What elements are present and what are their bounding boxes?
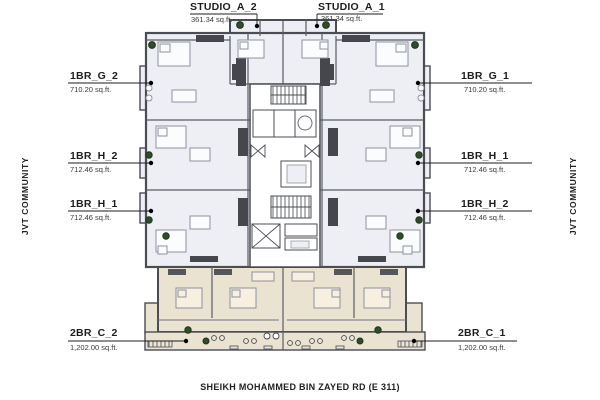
unit-area-1br-h-1-left: 712.46 sq.ft. bbox=[70, 213, 111, 222]
unit-area-studio-a-2: 361.34 sq.ft. bbox=[191, 15, 232, 24]
unit-area-1br-g-1: 710.20 sq.ft. bbox=[464, 85, 505, 94]
unit-area-1br-h-1-right: 712.46 sq.ft. bbox=[464, 165, 505, 174]
unit-label-2br-c-1: 2BR_C_1 bbox=[458, 327, 506, 339]
unit-area-1br-h-2-right: 712.46 sq.ft. bbox=[464, 213, 505, 222]
unit-label-2br-c-2: 2BR_C_2 bbox=[70, 327, 118, 339]
unit-label-1br-h-2-left: 1BR_H_2 bbox=[70, 150, 118, 162]
unit-label-1br-h-1-left: 1BR_H_1 bbox=[70, 198, 118, 210]
unit-area-2br-c-2: 1,202.00 sq.ft. bbox=[70, 343, 118, 352]
left-community-label: JVT COMMUNITY bbox=[19, 136, 31, 256]
unit-label-1br-h-2-right: 1BR_H_2 bbox=[461, 198, 509, 210]
core-stairs-lifts bbox=[250, 84, 320, 267]
unit-area-1br-g-2: 710.20 sq.ft. bbox=[70, 85, 111, 94]
unit-label-studio-a-1: STUDIO_A_1 bbox=[318, 1, 385, 13]
unit-area-studio-a-1: 361.34 sq.ft. bbox=[321, 14, 362, 23]
unit-label-1br-g-1: 1BR_G_1 bbox=[461, 70, 509, 82]
unit-label-studio-a-2: STUDIO_A_2 bbox=[190, 1, 257, 13]
unit-area-1br-h-2-left: 712.46 sq.ft. bbox=[70, 165, 111, 174]
unit-label-1br-h-1-right: 1BR_H_1 bbox=[461, 150, 509, 162]
bottom-road-label: SHEIKH MOHAMMED BIN ZAYED RD (E 311) bbox=[0, 382, 600, 392]
unit-label-1br-g-2: 1BR_G_2 bbox=[70, 70, 118, 82]
unit-area-2br-c-1: 1,202.00 sq.ft. bbox=[458, 343, 506, 352]
floor-plan-page: STUDIO_A_2 361.34 sq.ft. STUDIO_A_1 361.… bbox=[0, 0, 600, 400]
right-community-label: JVT COMMUNITY bbox=[567, 136, 579, 256]
